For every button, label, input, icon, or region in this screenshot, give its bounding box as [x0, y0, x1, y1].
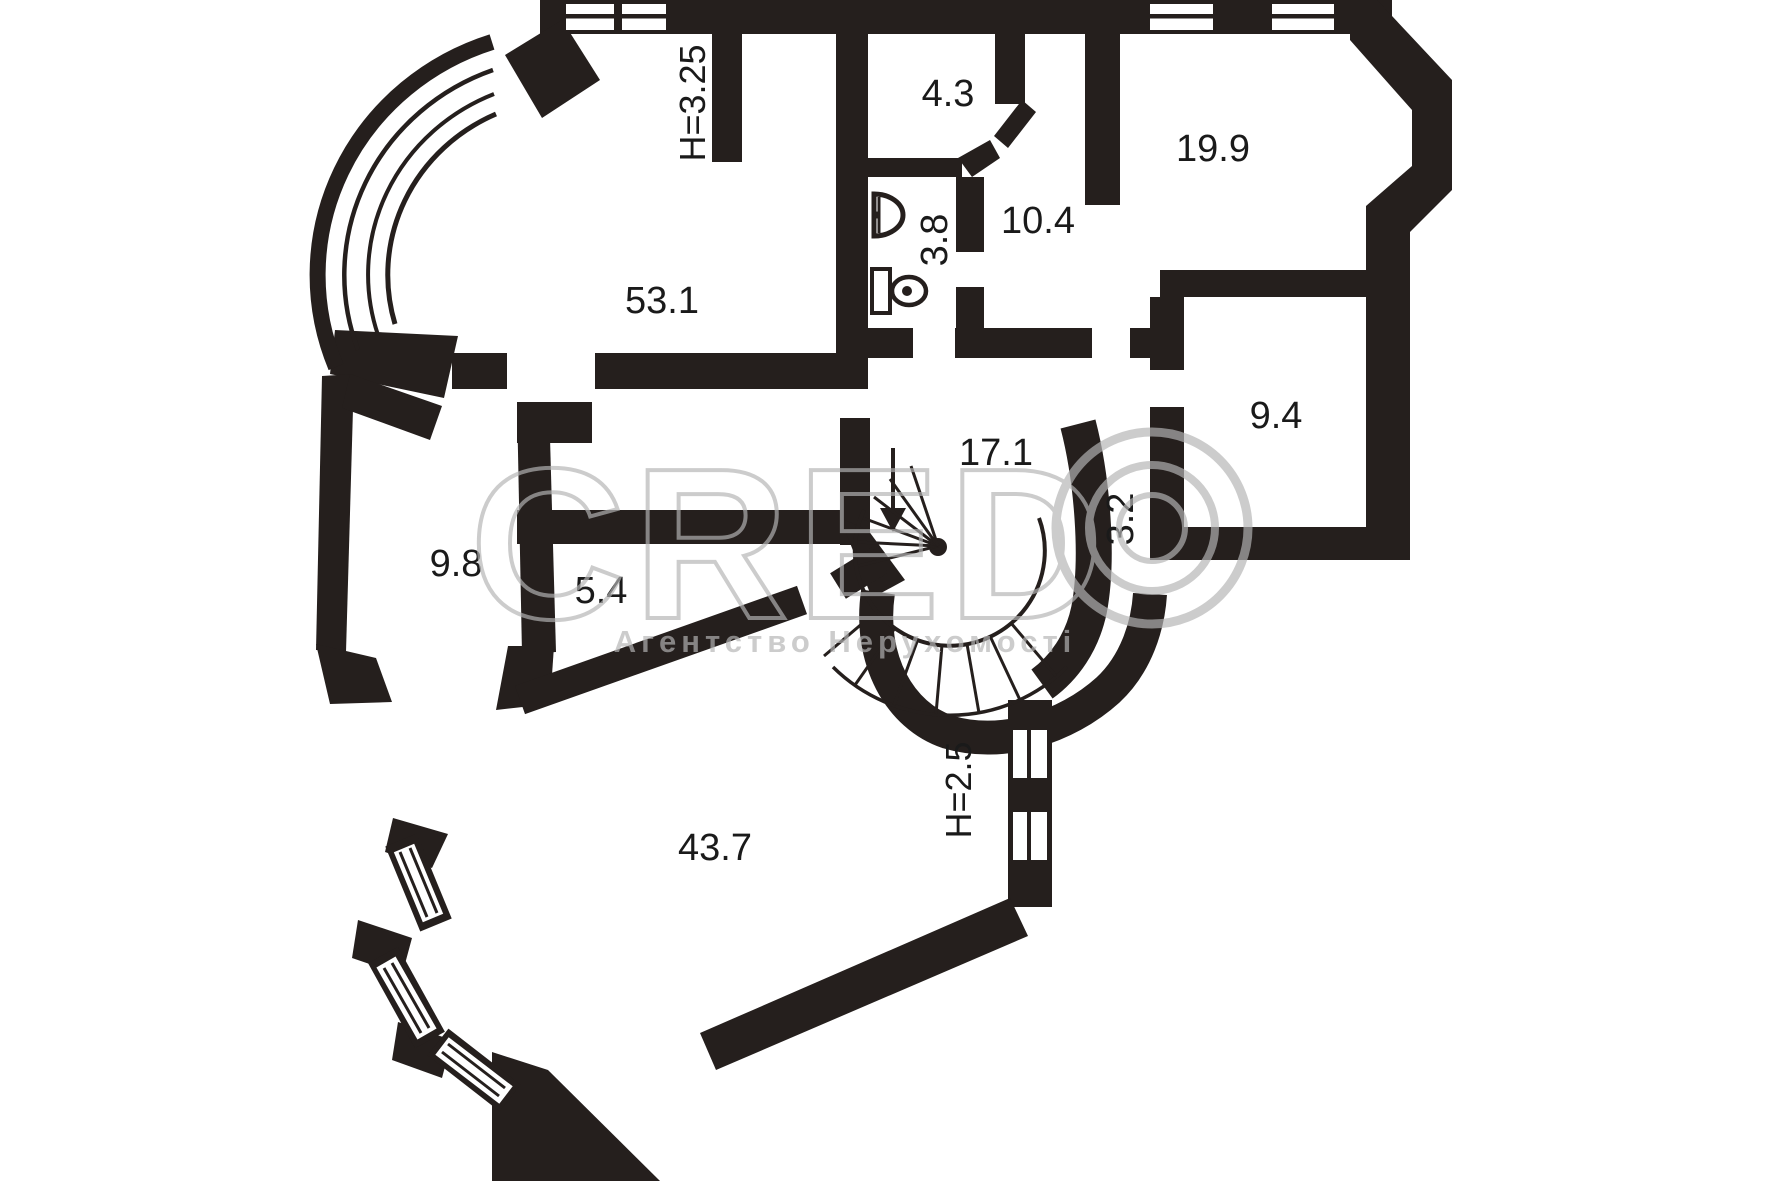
wall-98-left-foot	[316, 644, 392, 704]
wall-98-left	[316, 374, 354, 652]
window-icon	[1150, 4, 1213, 30]
room-label-10-4: 10.4	[1001, 200, 1075, 242]
window-icon	[1013, 812, 1047, 860]
wall-38-bottom-west	[845, 328, 913, 358]
room-label-4-3: 4.3	[922, 73, 975, 115]
wall-divider-43-104	[995, 34, 1025, 104]
window-icon	[1013, 730, 1047, 778]
room-label-53-1: 53.1	[625, 280, 699, 322]
wall-43-bottom-taper	[958, 140, 1000, 177]
window-icon	[622, 4, 666, 30]
wall-94-right	[1366, 210, 1410, 560]
wall-531-pier	[712, 34, 742, 162]
wall-437-southeast	[700, 898, 1028, 1070]
wall-531-bottom-east	[595, 353, 840, 389]
ceiling-height-label-lower: H=2.5	[938, 741, 979, 838]
toilet-icon	[872, 269, 926, 313]
door-leaf-43	[994, 100, 1036, 148]
room-label-3-8: 3.8	[914, 214, 956, 267]
wall-199-bay	[1350, 0, 1452, 234]
ceiling-height-label-upper: H=3.25	[672, 44, 713, 161]
room-label-9-4: 9.4	[1250, 395, 1303, 437]
wall-38-bottom-east	[955, 328, 1092, 358]
wall-437-south-foot	[492, 1052, 660, 1181]
room-label-19-9: 19.9	[1176, 128, 1250, 170]
wall-38-right-lower	[956, 287, 984, 333]
wall-531-bottom-west	[452, 353, 507, 389]
room-label-43-7: 43.7	[678, 827, 752, 869]
wall-38-right-upper	[956, 177, 984, 252]
window-icon	[438, 1042, 510, 1098]
sink-icon	[874, 194, 904, 236]
window-icon	[383, 955, 430, 1040]
wall-bay-top-stub	[505, 20, 600, 118]
wall-43-bottom	[862, 158, 962, 177]
window-icon	[566, 4, 614, 30]
bay-window-glass-arc-1	[344, 70, 493, 350]
watermark-agency-text: Агентство Нерухомості	[614, 624, 1077, 659]
wall-94-top	[1160, 270, 1366, 297]
bay-window-inner-arc	[388, 114, 496, 324]
wall-top	[540, 0, 1392, 34]
window-icon	[1272, 4, 1334, 30]
wall-199-left	[1085, 34, 1120, 205]
wall-94-left-upper	[1150, 297, 1184, 370]
floor-plan-canvas: 53.1 4.3 3.8 10.4 19.9 9.4 17.1 3.2 9.8 …	[0, 0, 1772, 1181]
